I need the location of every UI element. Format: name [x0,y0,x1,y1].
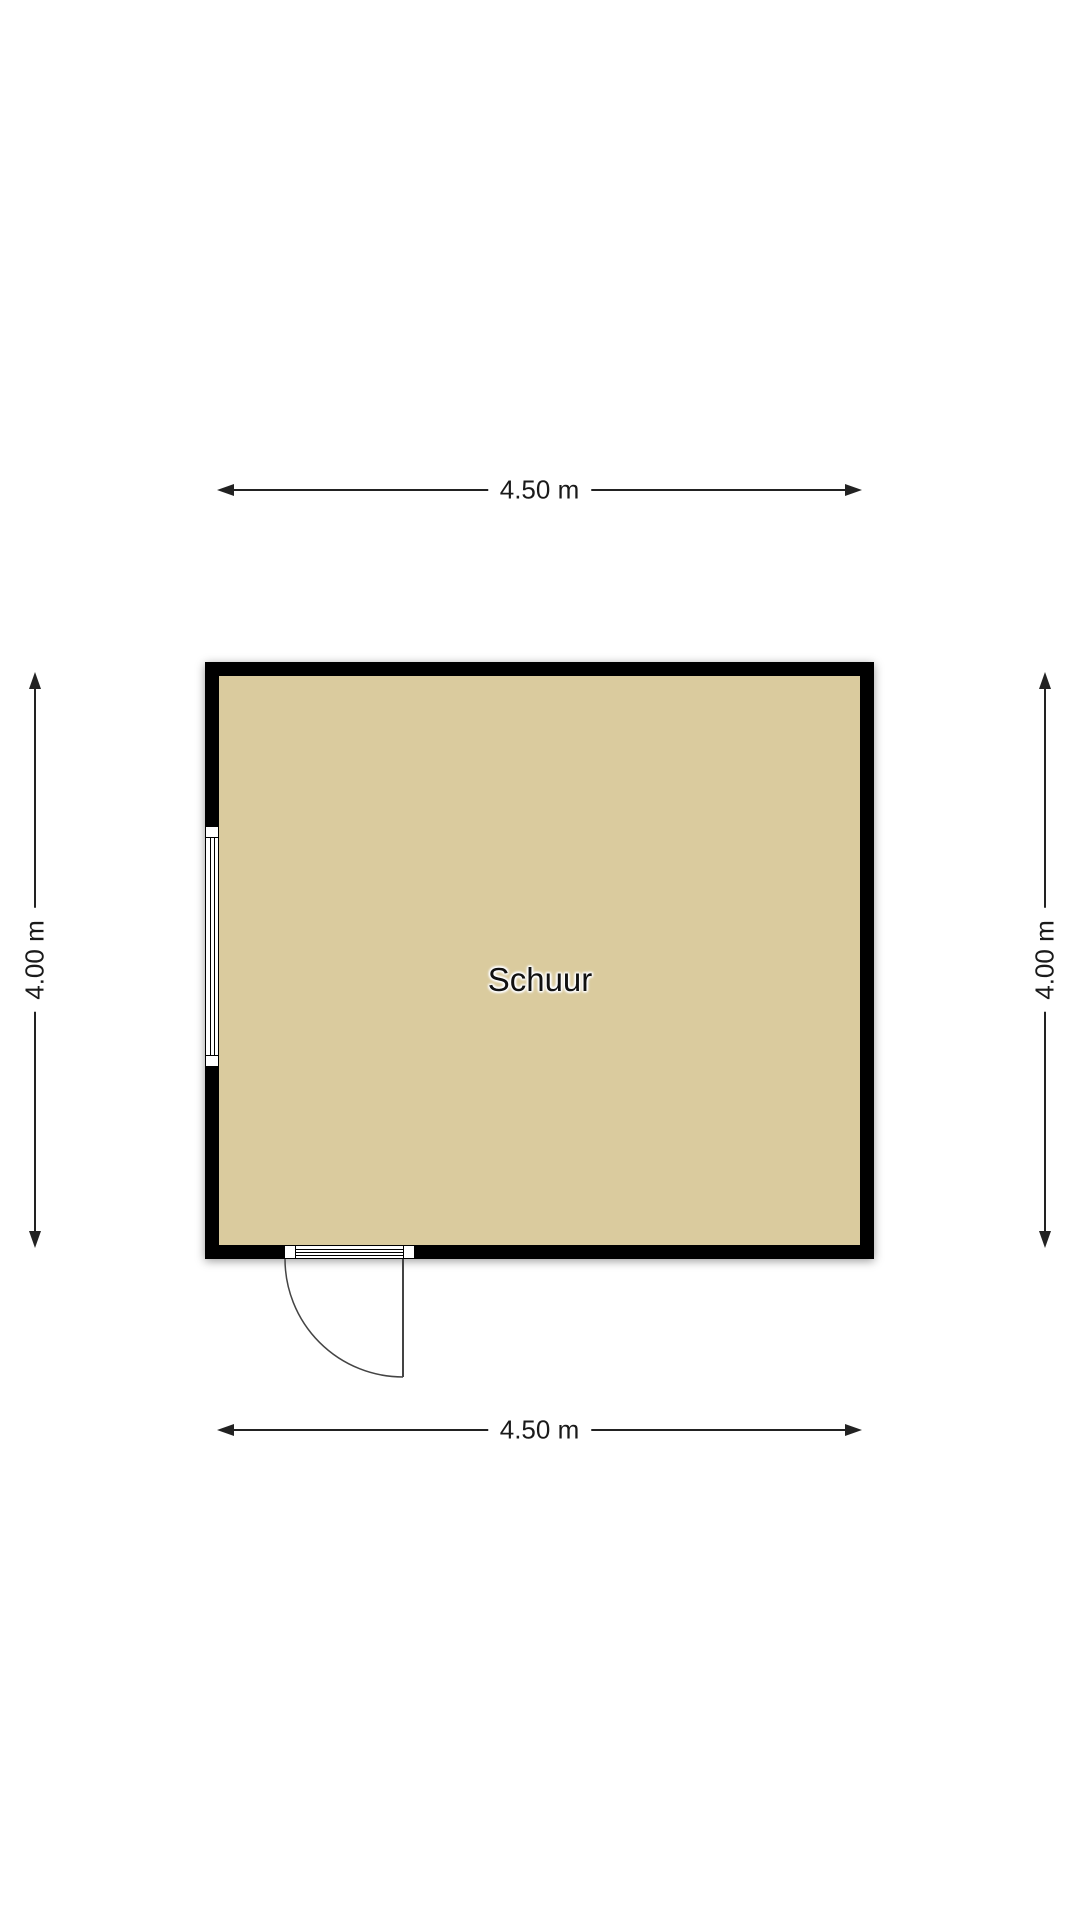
dimension-left: 4.00 m [25,672,45,1248]
dimension-right-label: 4.00 m [1028,908,1063,1012]
arrow-left-icon [217,1424,234,1436]
arrow-left-icon [217,484,234,496]
arrow-up-icon [29,672,41,689]
door-swing-icon [280,1255,420,1385]
arrow-down-icon [1039,1231,1051,1248]
dimension-left-label: 4.00 m [18,908,53,1012]
door-sill-line [296,1249,403,1250]
door-sill-line [296,1252,403,1253]
floorplan-canvas: 4.50 m 4.00 m 4.00 m Schuur [0,0,1080,1920]
room-label: Schuur [488,961,593,999]
window-glass [210,837,215,1056]
dimension-bottom-label: 4.50 m [488,1413,592,1448]
dimension-bottom: 4.50 m [217,1420,862,1440]
arrow-up-icon [1039,672,1051,689]
window-icon [205,826,219,1067]
arrow-down-icon [29,1231,41,1248]
window-cap-bottom [206,1055,218,1066]
dimension-right: 4.00 m [1035,672,1055,1248]
dimension-top: 4.50 m [217,480,862,500]
arrow-right-icon [845,484,862,496]
door-arc [285,1259,403,1377]
arrow-right-icon [845,1424,862,1436]
dimension-top-label: 4.50 m [488,473,592,508]
